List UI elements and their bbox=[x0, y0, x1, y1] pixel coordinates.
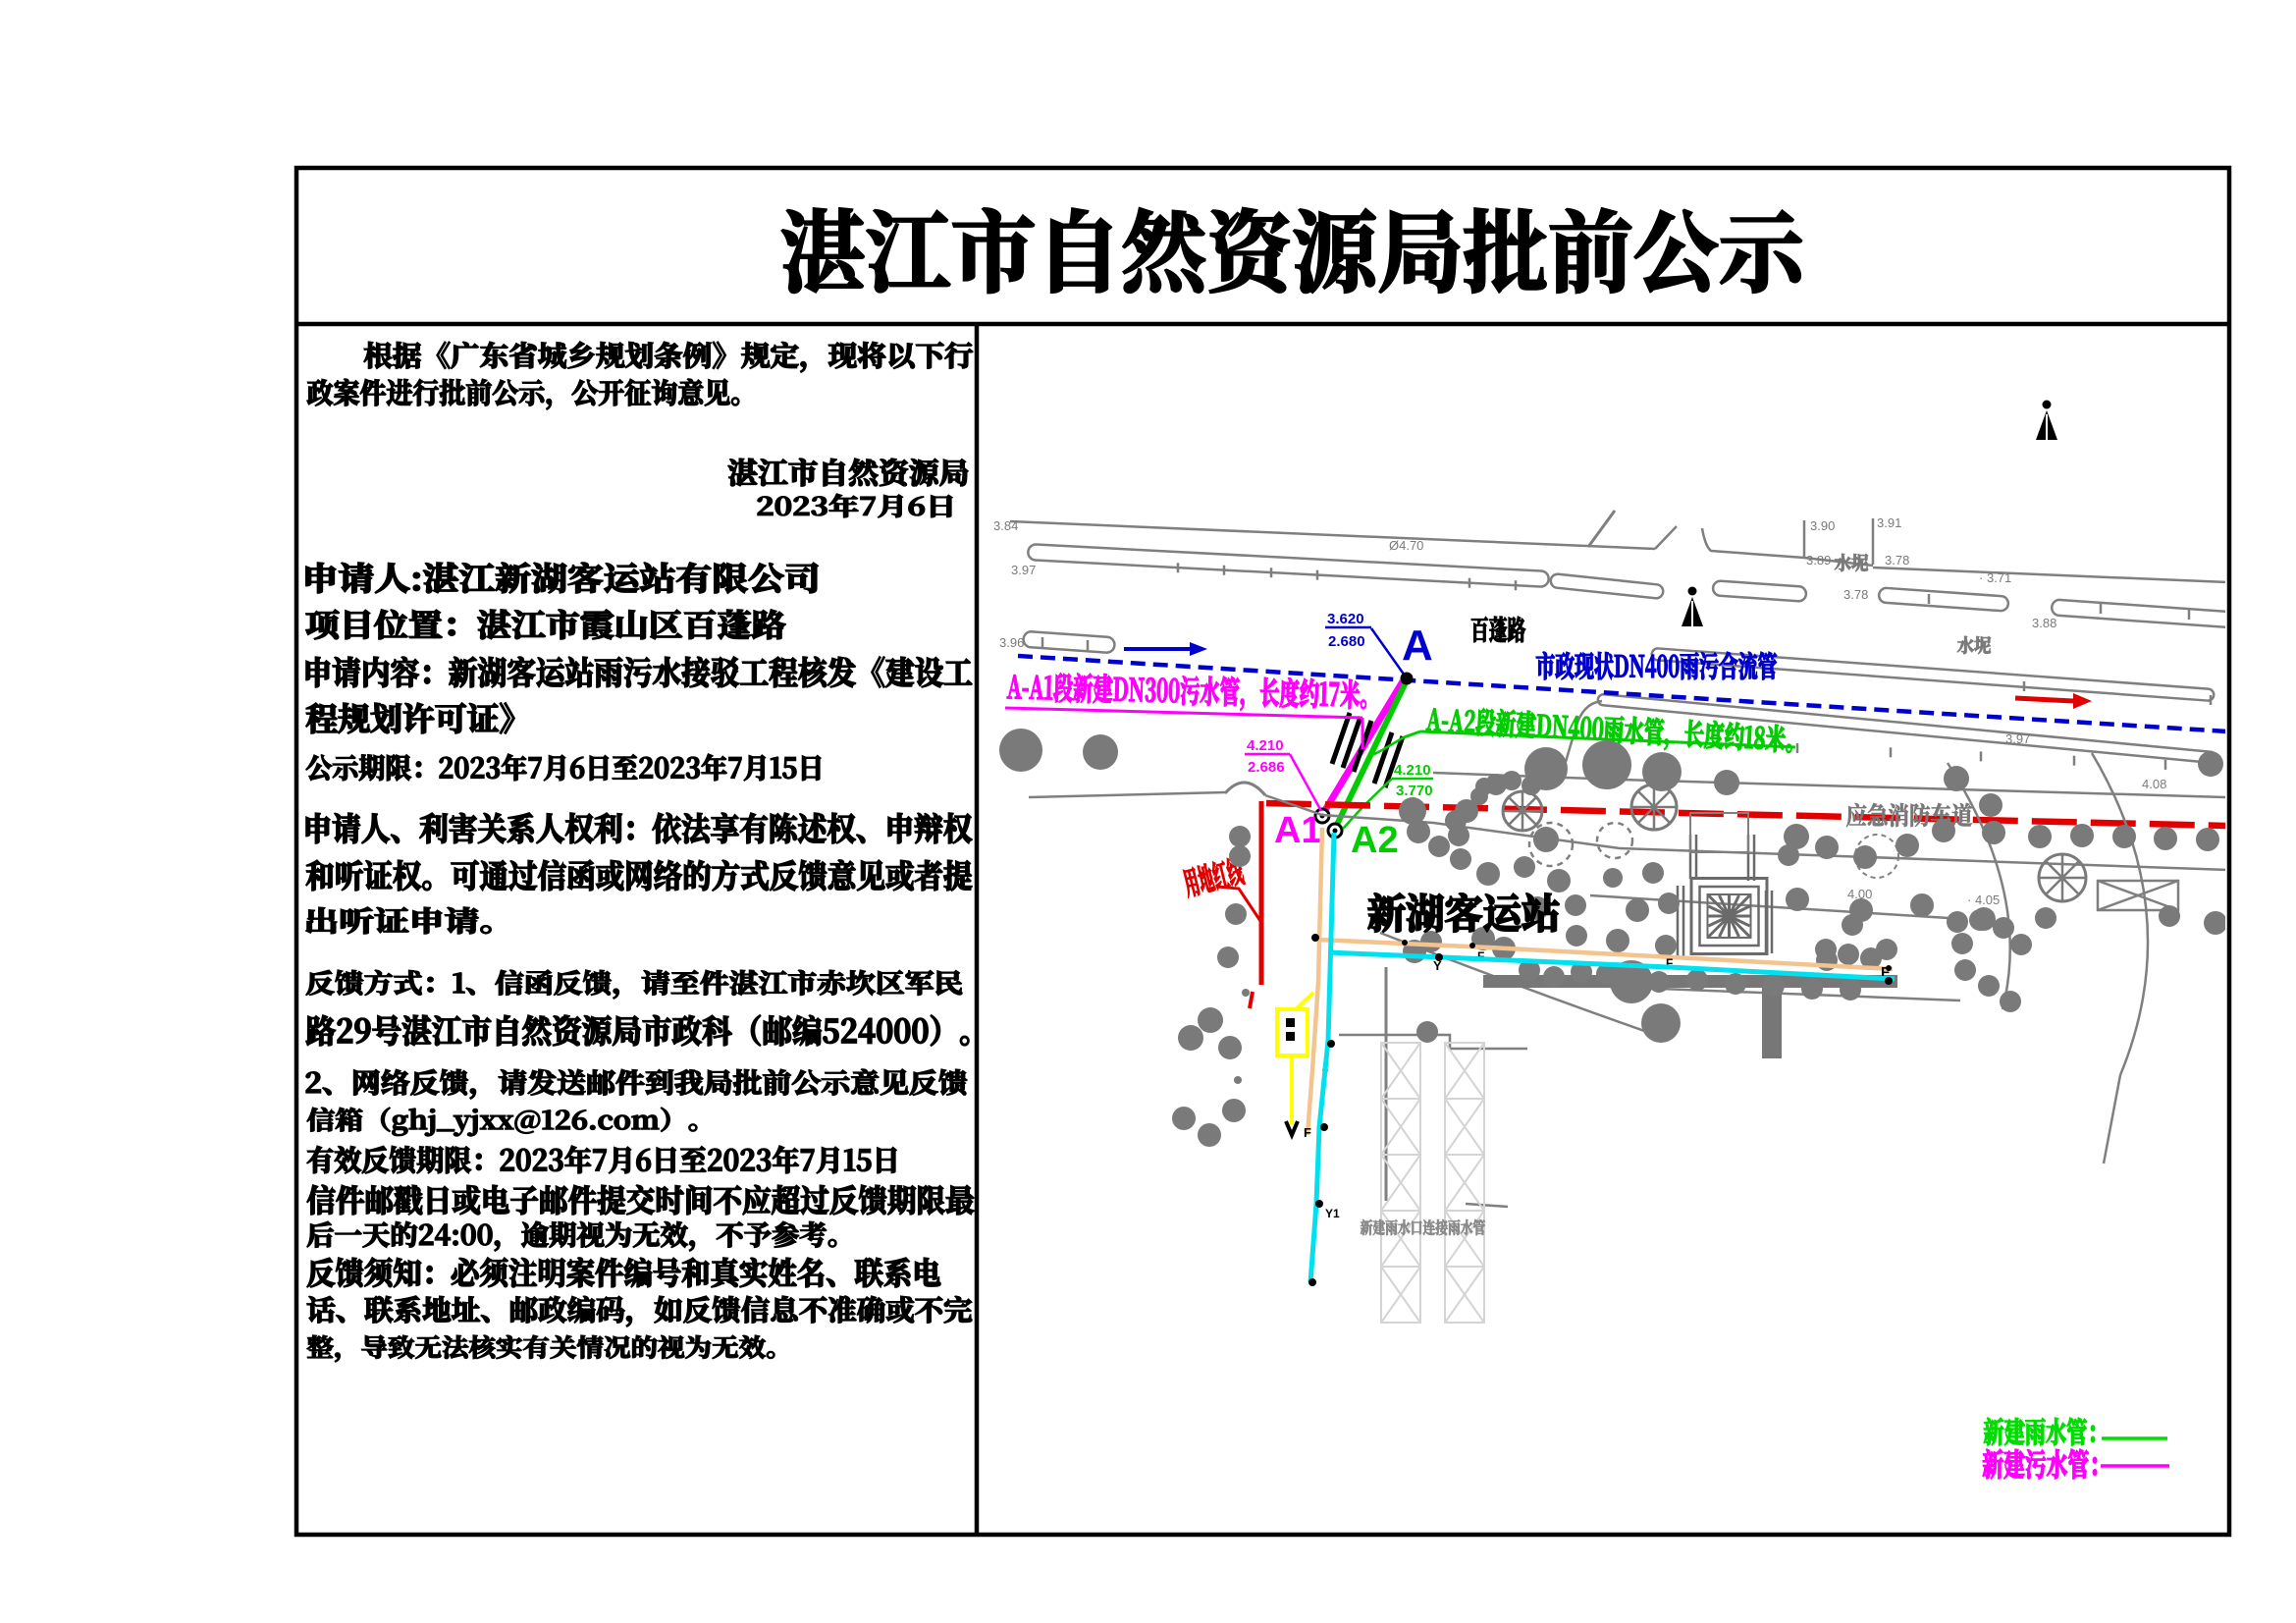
svg-text:· 4.05: · 4.05 bbox=[1967, 893, 2000, 907]
svg-text:3.97: 3.97 bbox=[1011, 563, 1036, 577]
svg-text:3.89: 3.89 bbox=[1806, 553, 1831, 568]
svg-text:4.00: 4.00 bbox=[1847, 887, 1872, 901]
svg-text:3.78: 3.78 bbox=[1843, 587, 1868, 602]
svg-text:3.96: 3.96 bbox=[999, 635, 1024, 650]
svg-text:3.84: 3.84 bbox=[993, 518, 1018, 533]
svg-text:4.210: 4.210 bbox=[1394, 762, 1431, 779]
svg-text:· 3.71: · 3.71 bbox=[1979, 570, 2011, 585]
svg-text:2.686: 2.686 bbox=[1248, 759, 1285, 776]
svg-text:Y: Y bbox=[1433, 958, 1442, 973]
svg-text:3.620: 3.620 bbox=[1327, 611, 1364, 627]
svg-text:A: A bbox=[1402, 622, 1433, 670]
svg-text:F: F bbox=[1304, 1125, 1311, 1140]
svg-text:Ø4.70: Ø4.70 bbox=[1389, 538, 1423, 553]
svg-text:2.680: 2.680 bbox=[1328, 633, 1365, 650]
svg-text:3.90: 3.90 bbox=[1810, 518, 1835, 533]
svg-text:4.08: 4.08 bbox=[2142, 777, 2166, 791]
svg-text:3.97: 3.97 bbox=[2005, 731, 2030, 746]
svg-text:3.88: 3.88 bbox=[2032, 616, 2056, 630]
svg-text:Y1: Y1 bbox=[1325, 1207, 1340, 1220]
svg-text:A1: A1 bbox=[1274, 810, 1322, 851]
svg-text:4.210: 4.210 bbox=[1247, 737, 1284, 754]
svg-text:3.91: 3.91 bbox=[1877, 515, 1901, 530]
svg-text:3.770: 3.770 bbox=[1396, 783, 1433, 799]
svg-text:3.78: 3.78 bbox=[1885, 553, 1909, 568]
svg-text:A2: A2 bbox=[1351, 820, 1399, 861]
